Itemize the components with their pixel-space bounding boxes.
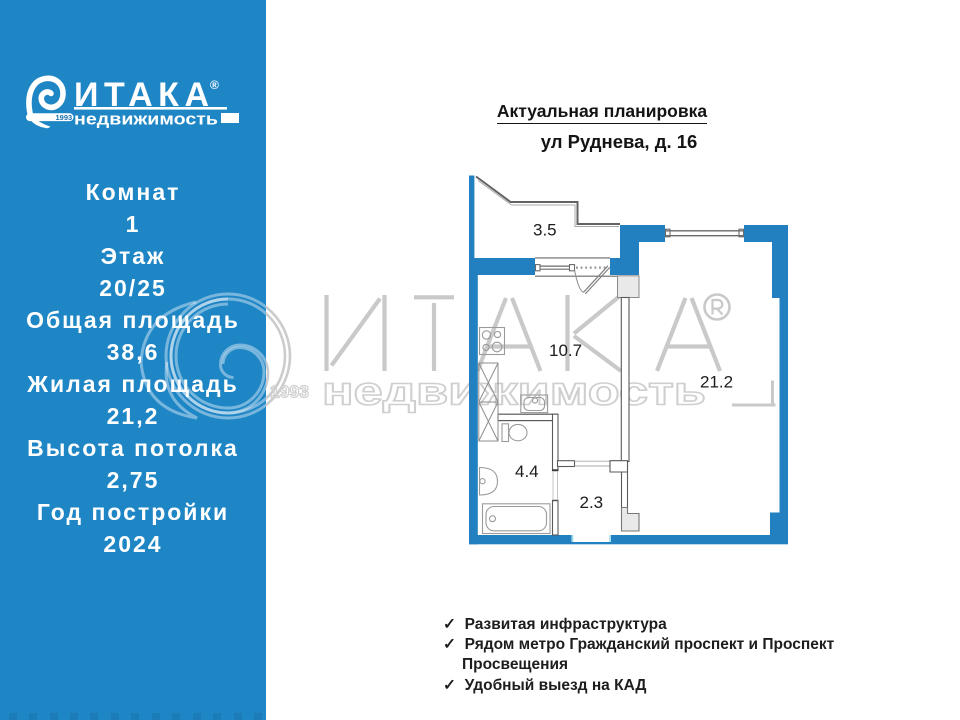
svg-text:10.7: 10.7	[549, 341, 582, 360]
svg-text:2.3: 2.3	[580, 493, 604, 512]
svg-text:1993: 1993	[270, 382, 309, 402]
svg-text:4.4: 4.4	[515, 462, 539, 481]
svg-text:21.2: 21.2	[700, 373, 733, 392]
svg-text:недвижимость: недвижимость	[322, 370, 706, 414]
svg-text:3.5: 3.5	[533, 221, 557, 240]
